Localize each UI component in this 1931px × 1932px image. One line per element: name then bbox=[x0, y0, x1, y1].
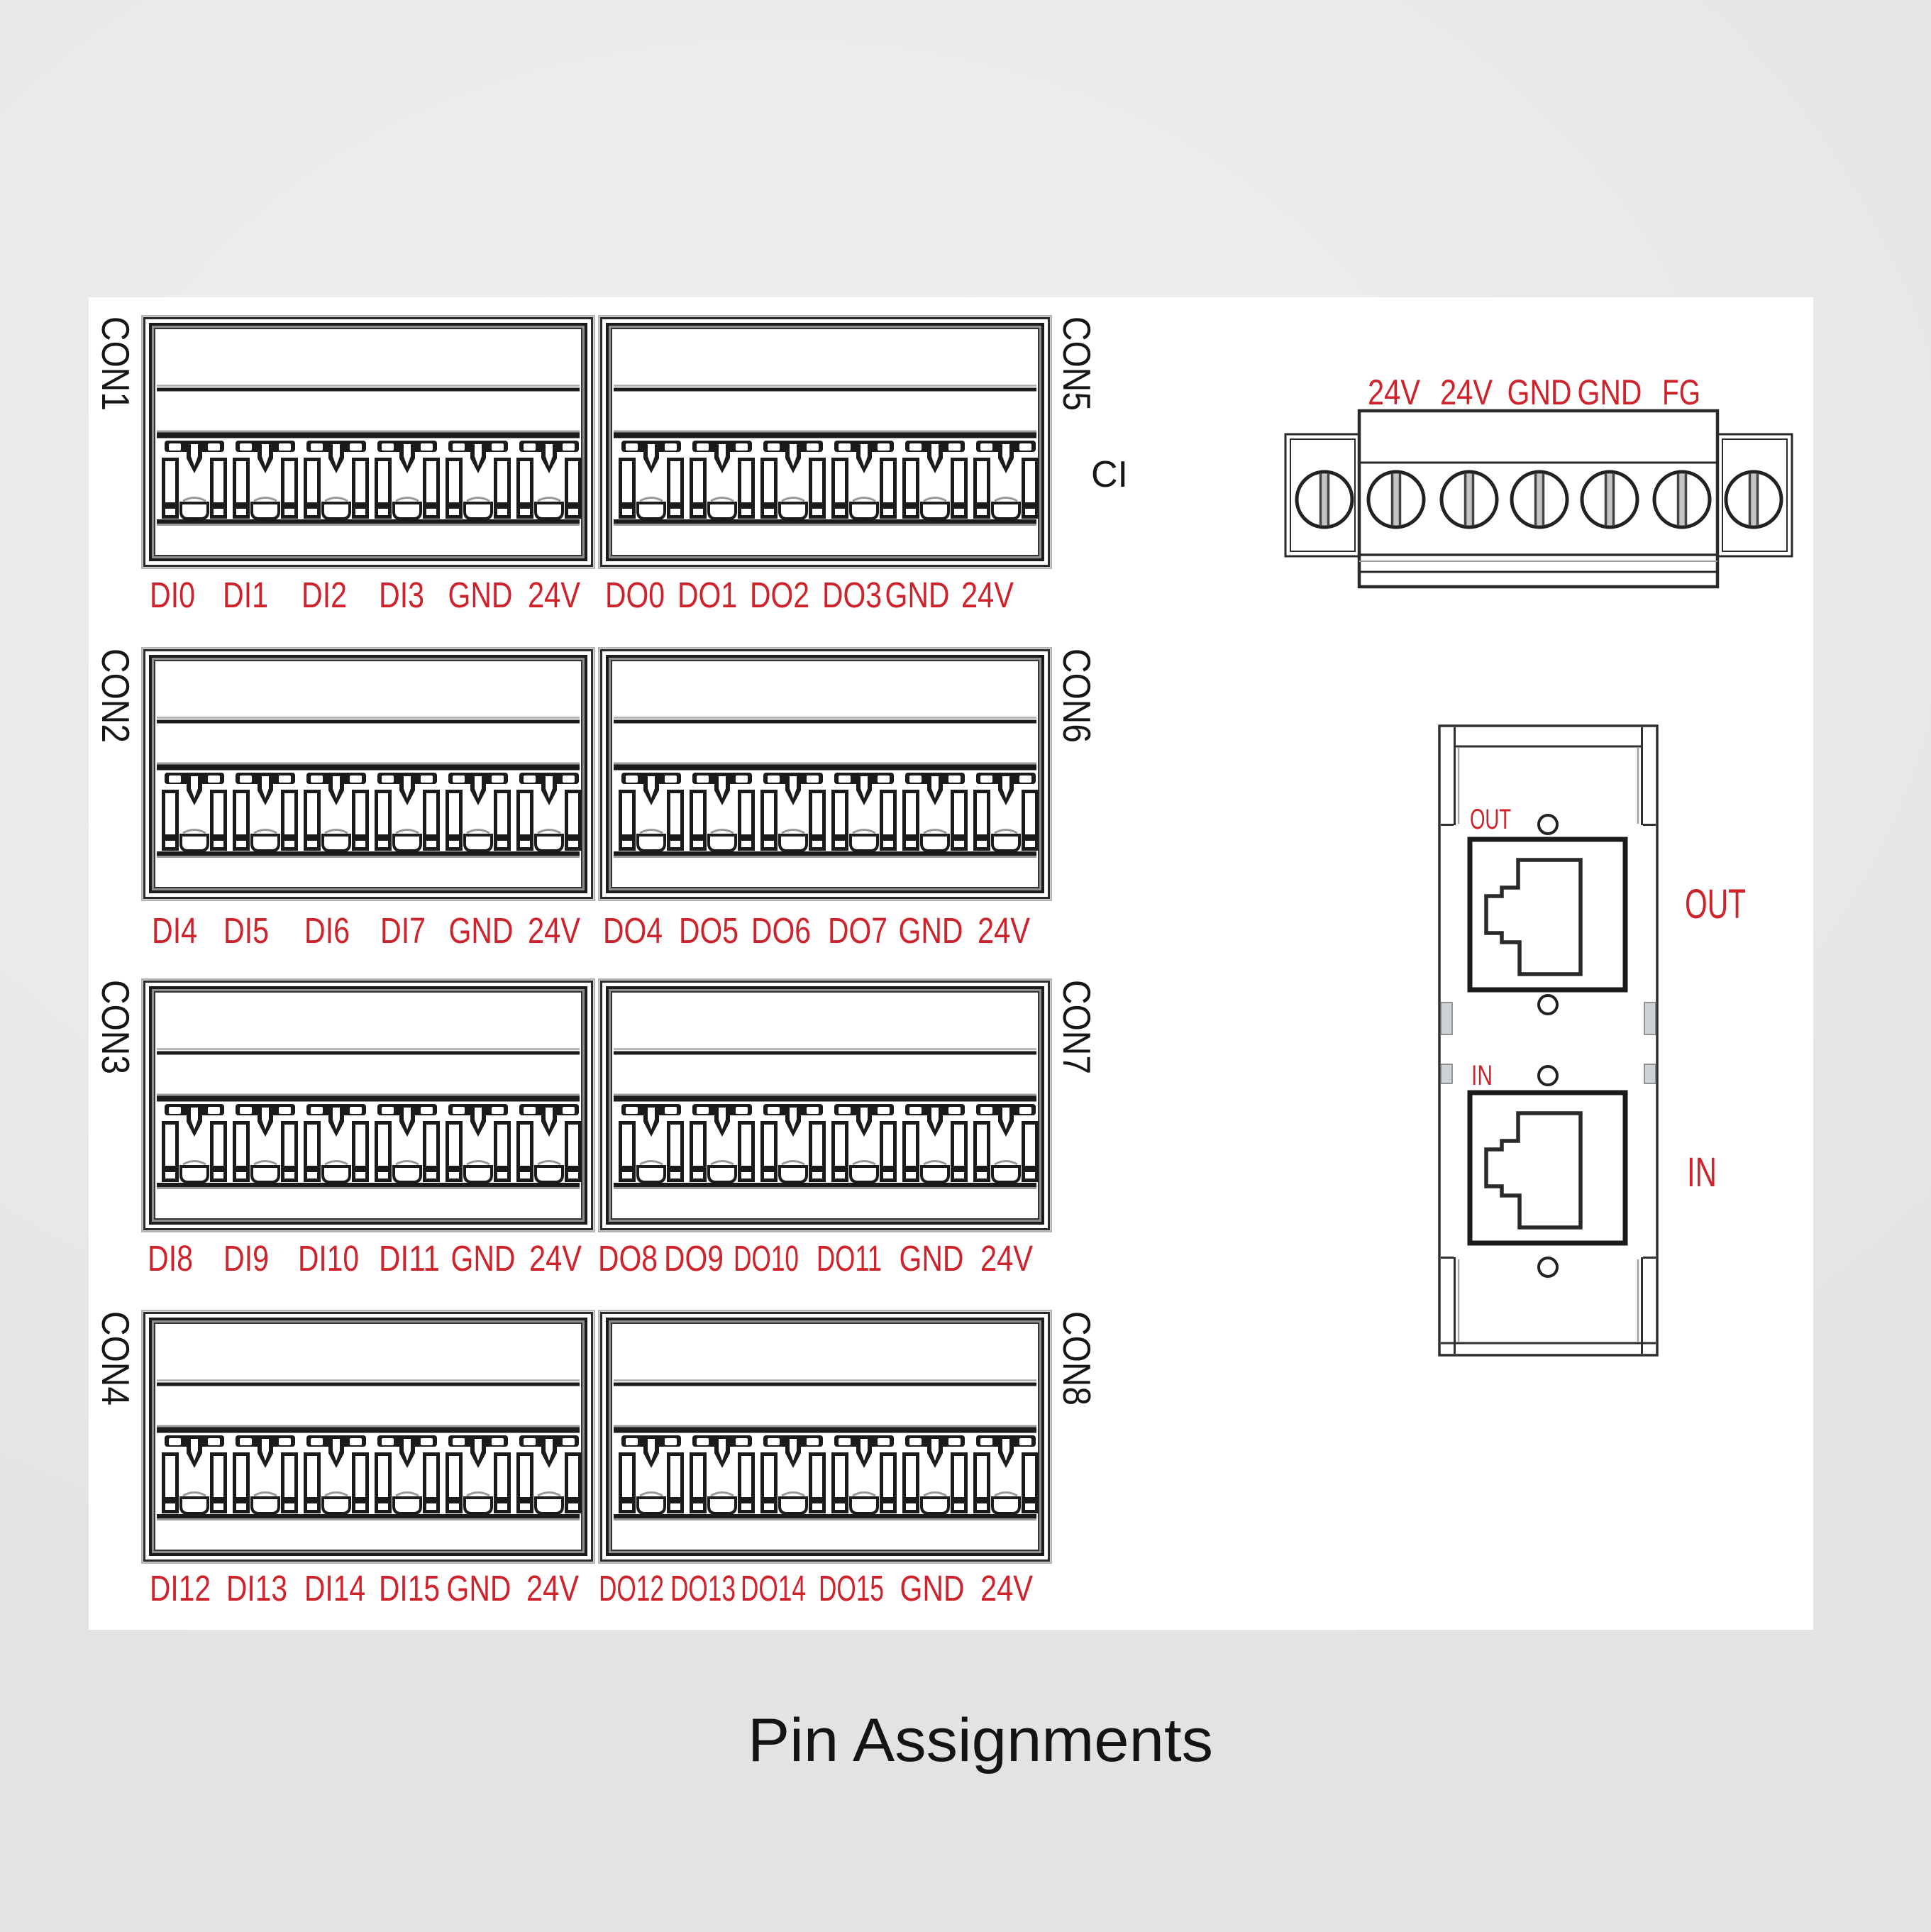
svg-text:GND: GND bbox=[449, 910, 514, 951]
svg-text:DI5: DI5 bbox=[223, 910, 269, 951]
svg-text:DO12: DO12 bbox=[599, 1568, 664, 1608]
svg-text:GND: GND bbox=[1507, 372, 1572, 412]
svg-text:DO13: DO13 bbox=[670, 1568, 736, 1608]
svg-text:GND: GND bbox=[899, 910, 963, 951]
svg-text:DO15: DO15 bbox=[819, 1568, 884, 1608]
svg-text:24V: 24V bbox=[1440, 372, 1493, 412]
svg-text:CON7: CON7 bbox=[1055, 980, 1099, 1074]
svg-text:OUT: OUT bbox=[1470, 804, 1511, 835]
svg-text:IN: IN bbox=[1687, 1149, 1717, 1196]
svg-text:DI13: DI13 bbox=[226, 1568, 287, 1608]
svg-text:24V: 24V bbox=[529, 1238, 582, 1279]
svg-text:CON5: CON5 bbox=[1055, 316, 1099, 411]
svg-text:DI12: DI12 bbox=[150, 1568, 211, 1608]
svg-text:GND: GND bbox=[1578, 372, 1642, 412]
svg-text:DO4: DO4 bbox=[603, 910, 663, 951]
svg-text:DO3: DO3 bbox=[822, 575, 882, 615]
svg-text:24V: 24V bbox=[528, 910, 580, 951]
svg-text:24V: 24V bbox=[980, 1238, 1033, 1279]
svg-text:DI6: DI6 bbox=[304, 910, 350, 951]
svg-text:24V: 24V bbox=[978, 910, 1030, 951]
svg-text:CI: CI bbox=[1091, 454, 1128, 495]
svg-text:DI3: DI3 bbox=[379, 575, 424, 615]
svg-text:DI2: DI2 bbox=[301, 575, 347, 615]
svg-text:DI1: DI1 bbox=[223, 575, 268, 615]
svg-text:CON3: CON3 bbox=[94, 980, 138, 1074]
svg-text:DO9: DO9 bbox=[664, 1238, 724, 1279]
svg-text:DO11: DO11 bbox=[817, 1238, 882, 1279]
svg-text:24V: 24V bbox=[528, 575, 580, 615]
svg-text:DI4: DI4 bbox=[152, 910, 197, 951]
svg-text:GND: GND bbox=[900, 1238, 964, 1279]
svg-text:DO0: DO0 bbox=[605, 575, 665, 615]
svg-text:CON8: CON8 bbox=[1055, 1311, 1099, 1406]
svg-text:GND: GND bbox=[885, 575, 950, 615]
svg-text:GND: GND bbox=[900, 1568, 965, 1608]
svg-text:DO14: DO14 bbox=[741, 1568, 806, 1608]
svg-text:24V: 24V bbox=[980, 1568, 1033, 1608]
svg-text:CON2: CON2 bbox=[94, 648, 138, 743]
svg-text:DO5: DO5 bbox=[679, 910, 738, 951]
svg-text:DO8: DO8 bbox=[598, 1238, 658, 1279]
svg-text:IN: IN bbox=[1471, 1060, 1493, 1091]
svg-text:DI7: DI7 bbox=[380, 910, 426, 951]
svg-text:DO10: DO10 bbox=[734, 1238, 799, 1279]
svg-text:DI0: DI0 bbox=[150, 575, 195, 615]
svg-text:CON1: CON1 bbox=[94, 316, 138, 411]
svg-text:24V: 24V bbox=[961, 575, 1014, 615]
svg-text:CON6: CON6 bbox=[1055, 648, 1099, 743]
svg-text:DI15: DI15 bbox=[379, 1568, 440, 1608]
svg-text:GND: GND bbox=[447, 1568, 511, 1608]
svg-text:OUT: OUT bbox=[1685, 881, 1746, 927]
svg-text:CON4: CON4 bbox=[94, 1311, 138, 1406]
svg-text:FG: FG bbox=[1662, 372, 1700, 412]
svg-text:DO1: DO1 bbox=[677, 575, 737, 615]
svg-text:DI8: DI8 bbox=[148, 1238, 193, 1279]
svg-text:DO2: DO2 bbox=[750, 575, 809, 615]
svg-text:DI11: DI11 bbox=[379, 1238, 440, 1279]
svg-text:GND: GND bbox=[448, 575, 513, 615]
svg-text:GND: GND bbox=[451, 1238, 516, 1279]
svg-text:24V: 24V bbox=[1368, 372, 1421, 412]
svg-text:DI9: DI9 bbox=[223, 1238, 269, 1279]
svg-text:24V: 24V bbox=[526, 1568, 579, 1608]
svg-text:DI14: DI14 bbox=[304, 1568, 365, 1608]
svg-text:DO6: DO6 bbox=[751, 910, 811, 951]
svg-text:DO7: DO7 bbox=[828, 910, 887, 951]
svg-text:Pin Assignments: Pin Assignments bbox=[748, 1706, 1213, 1774]
svg-text:DI10: DI10 bbox=[298, 1238, 359, 1279]
